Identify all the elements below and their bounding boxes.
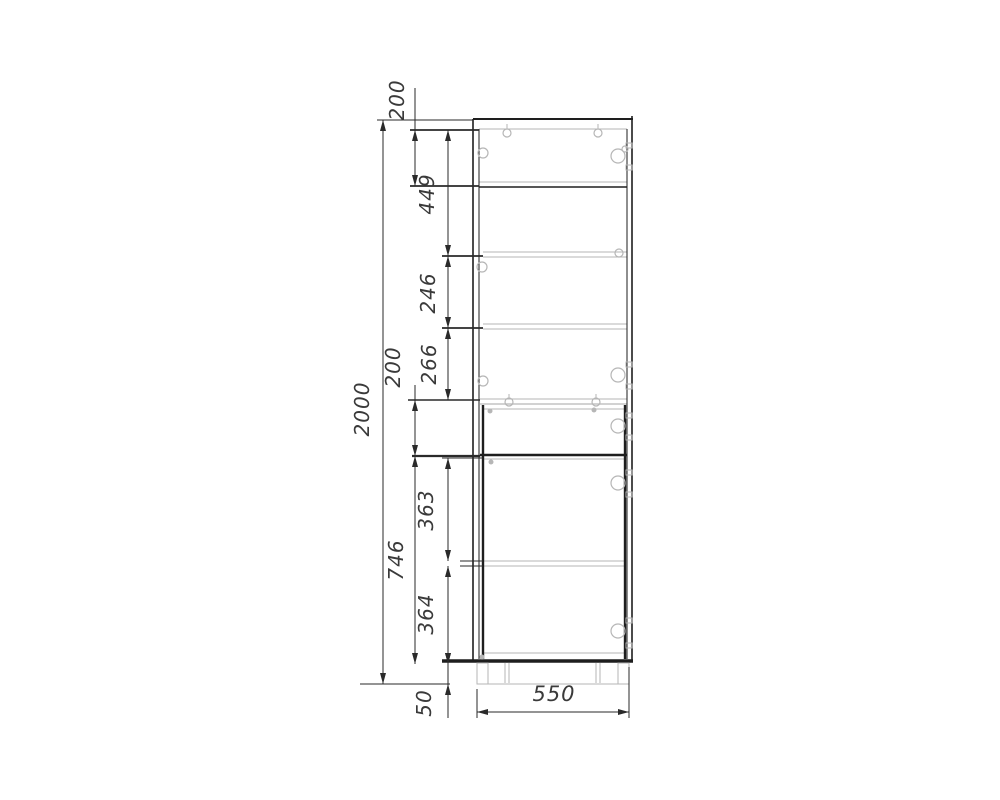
hinge-icon — [611, 368, 625, 382]
drawing-page: 200020044924626620074636336450550 — [0, 0, 1000, 800]
shelf-pin-icon — [615, 249, 623, 257]
cam-fitting-icon — [503, 129, 511, 137]
dim-label-v6: 746 — [384, 539, 408, 580]
dimension-arrow — [445, 458, 451, 469]
dimension-arrow — [445, 256, 451, 267]
dimension-arrow — [445, 550, 451, 561]
dimension-arrow — [445, 684, 451, 695]
dimension-arrow — [445, 130, 451, 141]
hinge-icon — [611, 419, 625, 433]
dim-label-v8: 364 — [414, 593, 438, 634]
plinth-leg-left — [477, 663, 488, 684]
dimension-arrow — [412, 445, 418, 456]
fitting-dot — [488, 409, 493, 414]
plinth-leg-right — [618, 663, 629, 684]
fitting-dot — [489, 460, 494, 465]
dimension-arrow — [380, 120, 386, 131]
fitting-dot — [480, 655, 485, 660]
dimension-arrow — [618, 709, 629, 715]
dimension-arrow — [477, 709, 488, 715]
cam-fitting-icon — [594, 129, 602, 137]
dim-label-h0: 550 — [532, 682, 575, 706]
hinge-icon — [611, 476, 625, 490]
dimension-arrow — [445, 317, 451, 328]
dimension-arrow — [445, 245, 451, 256]
dimension-arrow — [412, 653, 418, 664]
dim-label-v7: 363 — [414, 489, 438, 530]
dim-label-v1: 200 — [385, 79, 409, 120]
hinge-icon — [611, 624, 625, 638]
dimension-arrow — [445, 566, 451, 577]
dimension-arrow — [445, 328, 451, 339]
dimension-arrow — [445, 389, 451, 400]
dim-label-v0: 2000 — [350, 382, 374, 437]
dim-label-v2: 449 — [415, 173, 439, 214]
dim-label-v3: 246 — [416, 272, 440, 313]
dimension-arrow — [412, 400, 418, 411]
furniture-drawing-svg: 200020044924626620074636336450550 — [0, 0, 1000, 800]
dim-label-v9: 50 — [412, 689, 436, 716]
dimension-arrow — [380, 673, 386, 684]
dim-label-v4: 266 — [417, 343, 441, 384]
dim-label-v5: 200 — [381, 346, 405, 387]
fitting-dot — [592, 408, 597, 413]
dimension-arrow — [412, 456, 418, 467]
dimension-arrow — [412, 130, 418, 141]
